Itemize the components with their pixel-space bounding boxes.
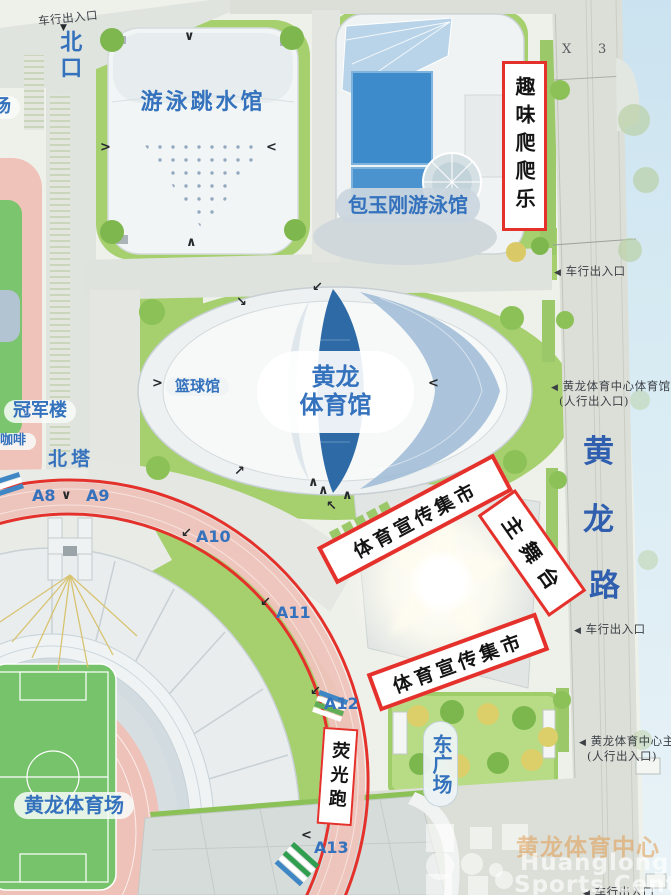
glow-run-event-box: 荧光跑 xyxy=(317,727,359,826)
right-vehicle-mid-arrow-icon: ◀ xyxy=(574,626,581,636)
track-point-a9: A9 xyxy=(86,487,110,505)
glow-run-text: 荧光跑 xyxy=(322,740,353,814)
road-name-char-3: 路 xyxy=(589,560,620,605)
plaza-arrow-upleft-icon: ↖ xyxy=(326,500,337,513)
bao-yugang-natatorium-label: 包玉刚游泳馆 xyxy=(336,188,480,223)
survey-mark-x: X xyxy=(562,42,572,57)
swim-left-arrow-icon: > xyxy=(100,141,111,154)
right-vehicle-upper-label: ◀ 车行出入口 xyxy=(554,263,626,279)
swim-top-arrow-icon: ∨ xyxy=(184,30,195,43)
right-ped-lower-line1: 黄龙体育中心主 xyxy=(591,734,671,748)
track-point-a10: A10 xyxy=(196,528,231,546)
gym-left-arrow-icon: > xyxy=(152,377,163,390)
soccer-field xyxy=(0,664,116,890)
gym-bottom-arrow-icon: ∧ xyxy=(308,476,319,489)
a12-arrow-icon: ↙ xyxy=(310,685,321,698)
right-ped-lower-arrow-icon: ◀ xyxy=(579,738,586,748)
road-name-char-1: 黄 xyxy=(583,426,614,471)
right-ped-upper-arrow-icon: ◀ xyxy=(551,383,558,393)
huanglong-sports-center-map: 车行出入口 ▼ 北口 场 游泳跳水馆 包玉刚游泳馆 篮球馆 黄龙 体育馆 冠军楼… xyxy=(0,0,671,895)
gym-bottom-arrow2-icon: ∧ xyxy=(342,489,353,502)
fun-climbing-event-box: 趣味爬爬乐 xyxy=(502,61,547,231)
right-ped-lower-label: ◀ 黄龙体育中心主 (人行出入口) xyxy=(579,734,671,764)
a11-arrow-icon: ↙ xyxy=(260,596,271,609)
bao-yugang-natatorium-building xyxy=(313,14,524,265)
track-point-a13: A13 xyxy=(314,839,349,857)
stadium-label: 黄龙体育场 xyxy=(14,792,134,819)
survey-mark-3: 3 xyxy=(598,42,607,57)
road-name-char-2: 龙 xyxy=(583,494,614,539)
track-point-a12: A12 xyxy=(324,695,359,713)
right-ped-upper-line2: (人行出入口) xyxy=(551,394,629,408)
plaza-arrow-up-icon: ∧ xyxy=(318,484,329,497)
swimming-diving-hall-label: 游泳跳水馆 xyxy=(122,90,284,115)
north-tower-label: 北塔 xyxy=(48,449,94,471)
gym-topleft-arrow-icon: ↘ xyxy=(236,296,247,309)
a9-arrow-icon: ∨ xyxy=(61,489,72,502)
champion-building-label: 冠军楼 xyxy=(4,400,76,423)
right-vehicle-upper-text: 车行出入口 xyxy=(566,264,626,278)
gym-top-arrow-icon: ↙ xyxy=(312,281,323,294)
right-vehicle-upper-arrow-icon: ◀ xyxy=(554,268,561,278)
a10-arrow-icon: ↙ xyxy=(181,527,192,540)
right-ped-upper-line1: 黄龙体育中心体育馆主 xyxy=(563,379,671,393)
basketball-hall-label: 篮球馆 xyxy=(166,377,229,396)
track-point-a11: A11 xyxy=(276,604,311,622)
right-vehicle-mid-label: ◀ 车行出入口 xyxy=(574,621,646,637)
east-plaza-label: 东广场 xyxy=(423,721,458,807)
fun-climbing-text: 趣味爬爬乐 xyxy=(510,76,539,216)
gym-right-arrow-icon: < xyxy=(428,377,439,390)
swim-right-arrow-icon: < xyxy=(266,141,277,154)
right-ped-lower-line2: (人行出入口) xyxy=(579,749,657,763)
right-ped-upper-label: ◀ 黄龙体育中心体育馆主 (人行出入口) xyxy=(551,379,671,409)
watermark-en-line2: Sports Centre xyxy=(514,872,671,895)
a13-arrow-icon: < xyxy=(301,829,312,842)
coffee-label: 咖啡 xyxy=(0,433,36,450)
gymnasium-label: 黄龙 体育馆 xyxy=(257,351,414,433)
track-point-a8: A8 xyxy=(32,487,56,505)
gym-bottomleft-arrow-icon: ↗ xyxy=(234,465,245,478)
gymnasium-label-line2: 体育馆 xyxy=(257,392,414,420)
north-gate-label: 北口 xyxy=(56,30,81,82)
gymnasium-label-line1: 黄龙 xyxy=(257,364,414,392)
right-vehicle-mid-text: 车行出入口 xyxy=(586,622,646,636)
swim-bottom-arrow-icon: ∧ xyxy=(186,236,197,249)
